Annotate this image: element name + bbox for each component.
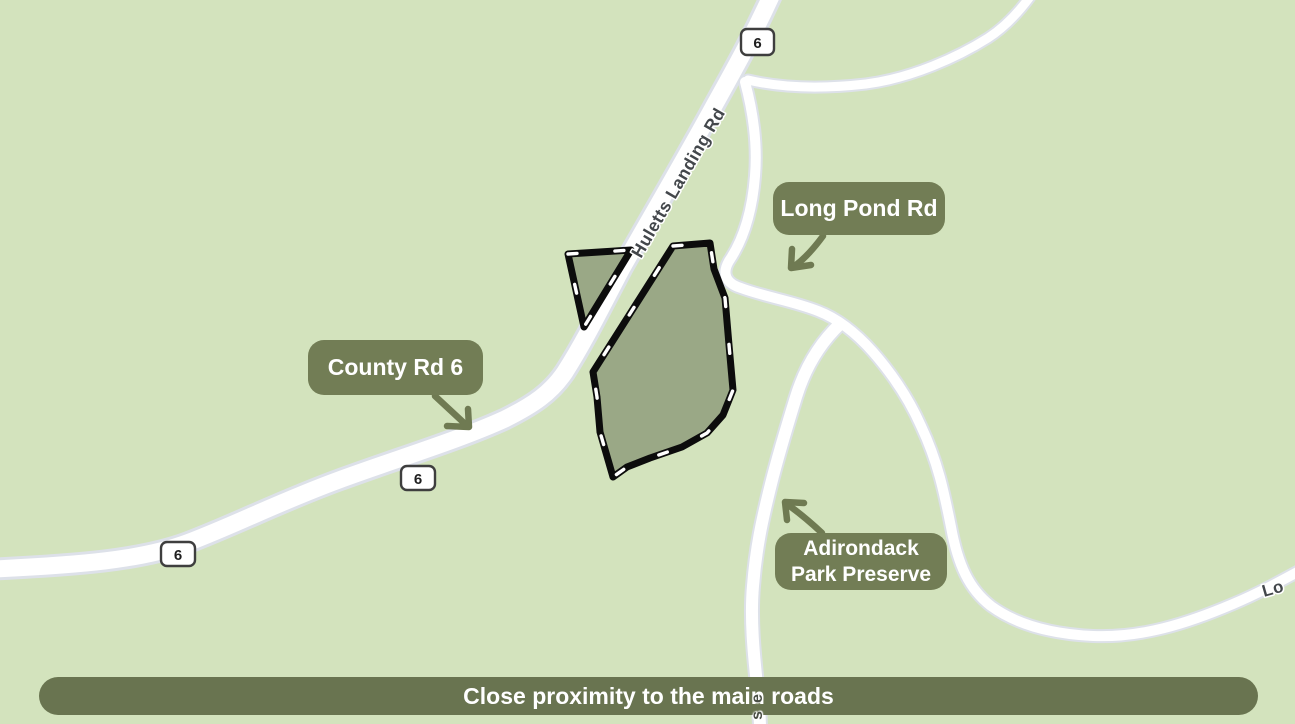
callout-label-line2: Park Preserve	[791, 562, 931, 588]
caption-text: Close proximity to the main roads	[463, 683, 834, 710]
callout-label: Long Pond Rd	[780, 195, 937, 223]
route-shield-number: 6	[414, 471, 422, 488]
route-shield-number: 6	[174, 547, 182, 564]
route-shield-middle: 6	[401, 466, 435, 490]
callout-county-rd-6: County Rd 6	[308, 340, 483, 395]
map-graphics: 6 6 6 Huletts Landing Rd Lo	[0, 0, 1295, 724]
callout-adirondack-park-preserve: Adirondack Park Preserve	[775, 533, 947, 590]
route-shield-left: 6	[161, 542, 195, 566]
caption-banner: Close proximity to the main roads	[39, 677, 1258, 715]
route-shield-top: 6	[741, 29, 774, 55]
callout-label: County Rd 6	[328, 354, 463, 382]
route-shield-number: 6	[753, 35, 761, 52]
road-label-vertical-partial: se	[742, 686, 774, 720]
callout-long-pond-rd: Long Pond Rd	[773, 182, 945, 235]
map-image: 6 6 6 Huletts Landing Rd Lo Long Pond Rd	[0, 0, 1295, 724]
callout-label-line1: Adirondack	[803, 536, 919, 562]
